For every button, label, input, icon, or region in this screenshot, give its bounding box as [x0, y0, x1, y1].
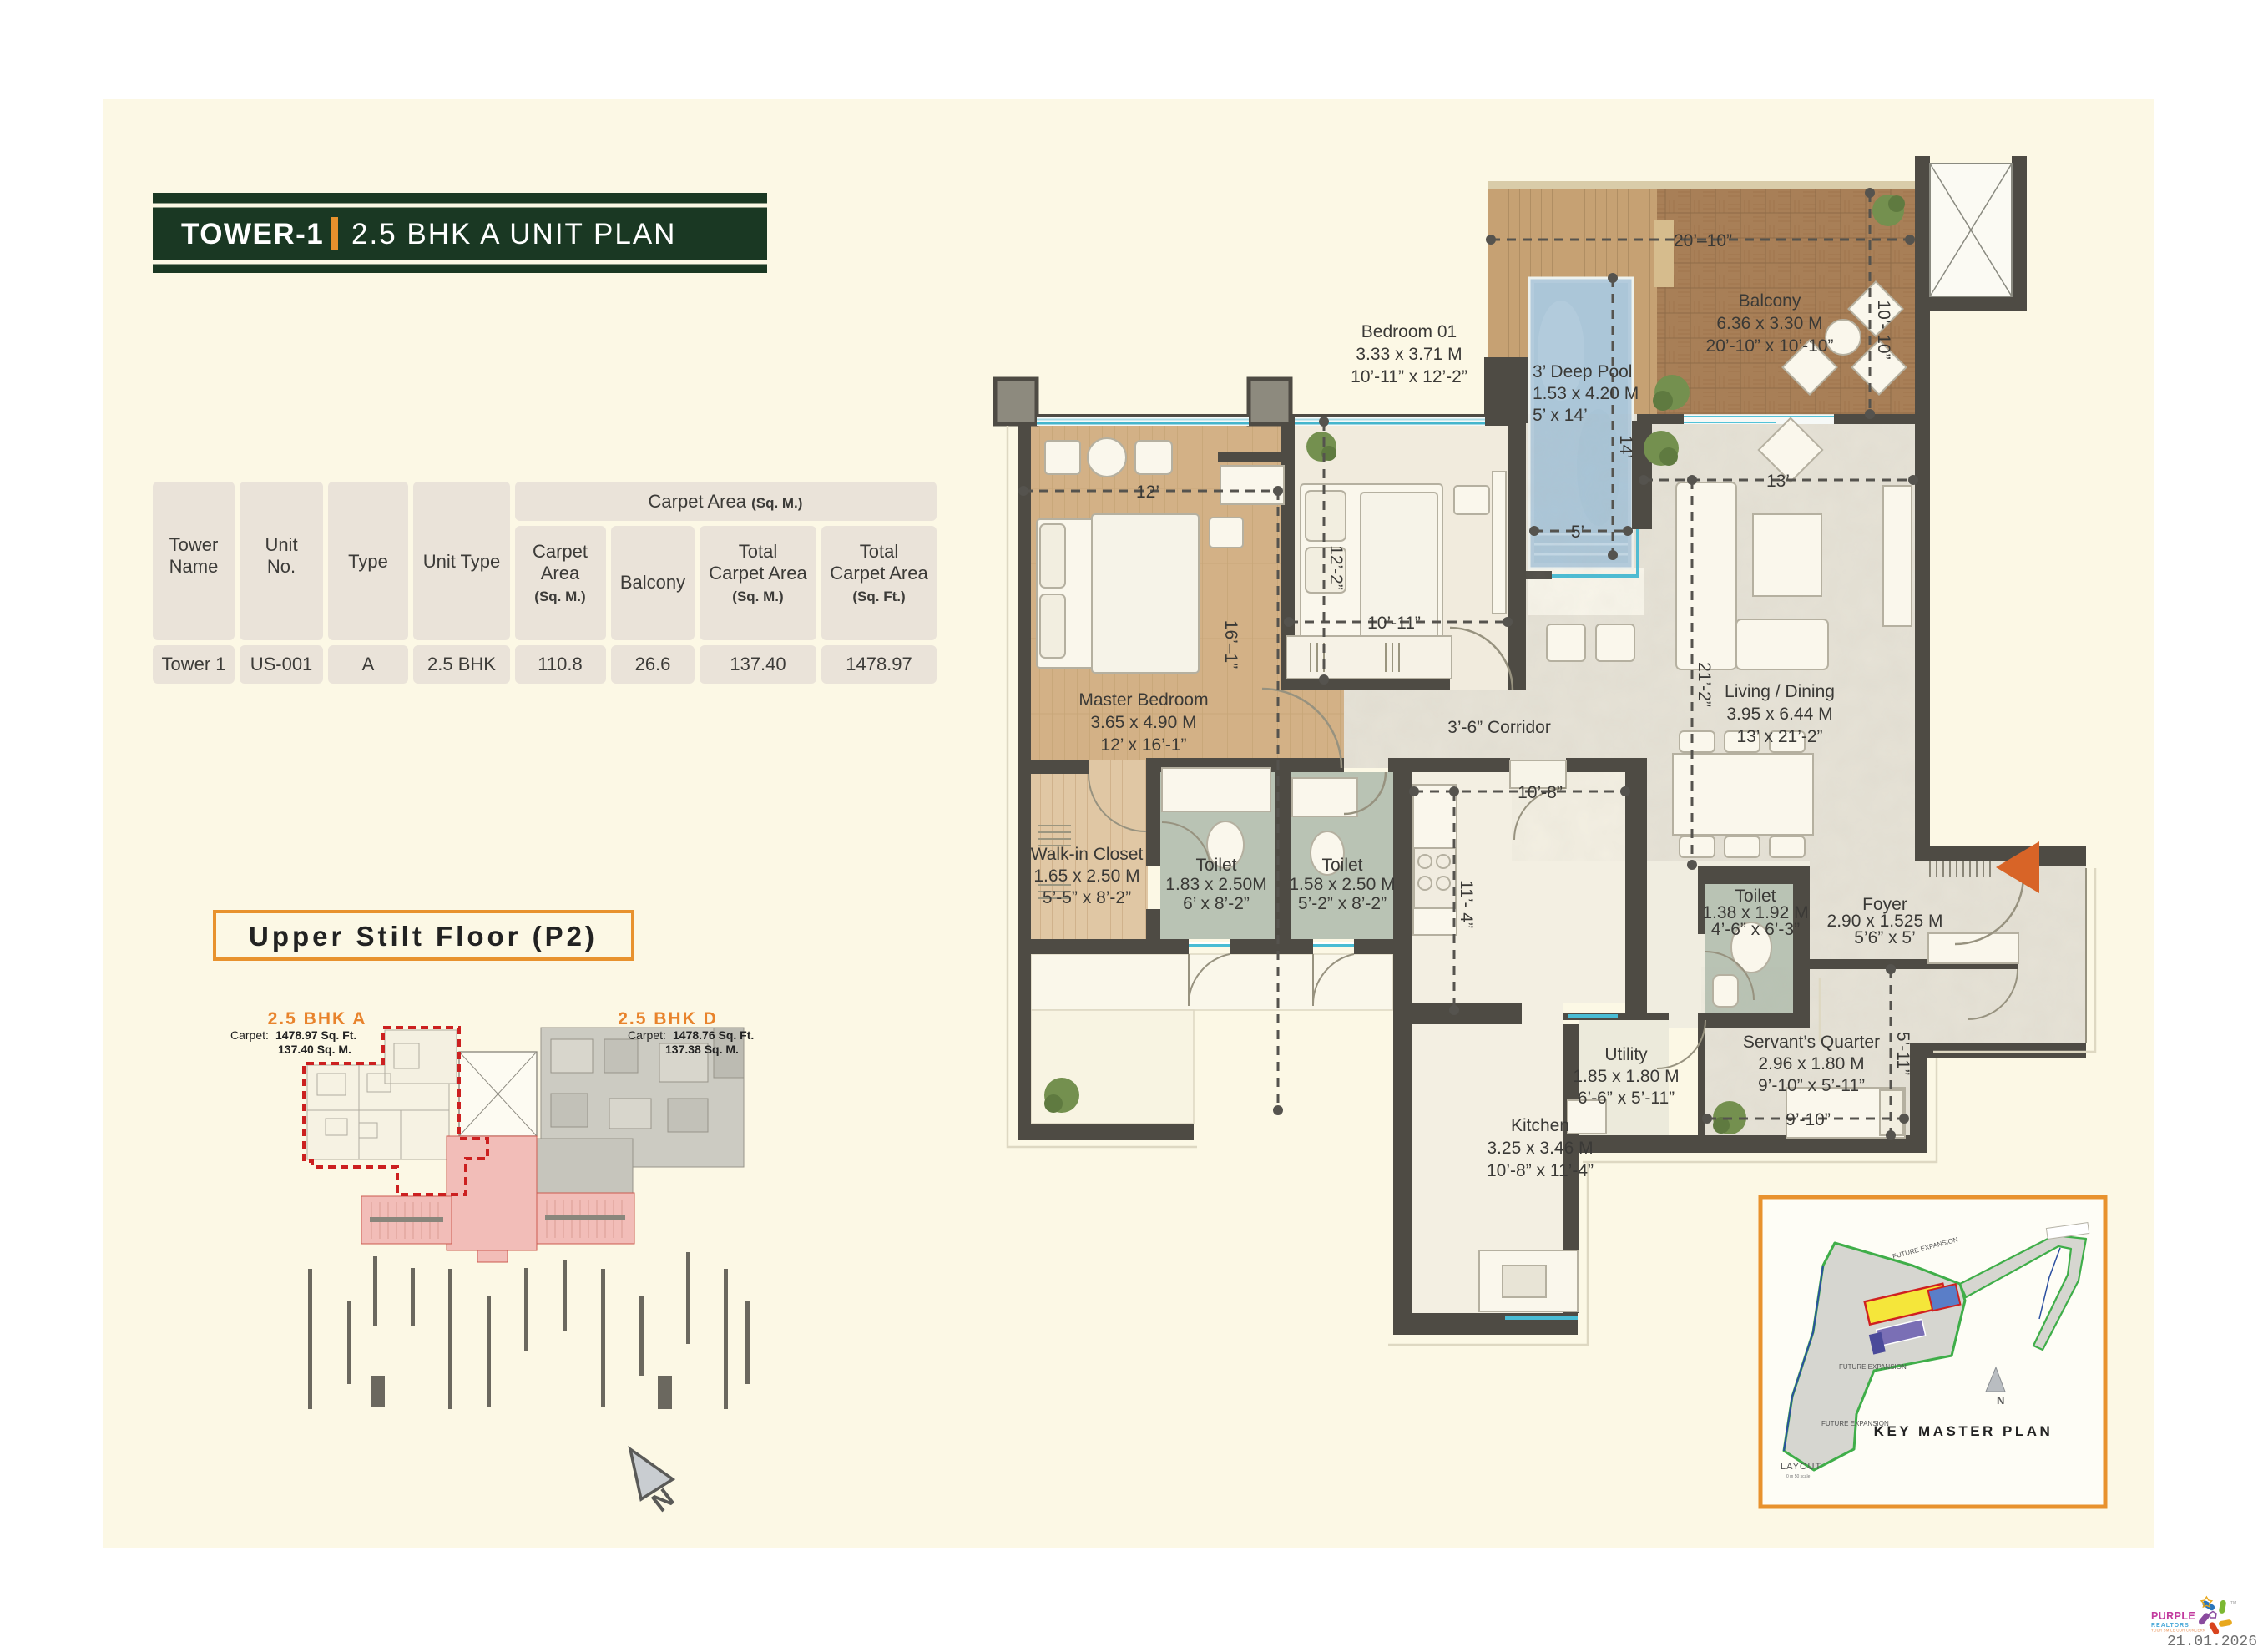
- svg-text:10’-11”: 10’-11”: [1367, 614, 1421, 633]
- svg-text:5’6” x 5’: 5’6” x 5’: [1854, 928, 1916, 947]
- svg-text:Total: Total: [860, 541, 898, 562]
- svg-text:4’-6” x 6’-3”: 4’-6” x 6’-3”: [1711, 920, 1800, 939]
- svg-text:20’–10”: 20’–10”: [1674, 231, 1732, 250]
- svg-text:LAYOUT: LAYOUT: [1781, 1462, 1821, 1472]
- svg-text:0 m 50 scale: 0 m 50 scale: [1786, 1474, 1811, 1479]
- svg-text:3.65 x 4.90 M: 3.65 x 4.90 M: [1090, 713, 1196, 732]
- svg-text:Walk-in Closet: Walk-in Closet: [1031, 845, 1144, 864]
- svg-text:Unit Type: Unit Type: [423, 551, 501, 572]
- svg-text:5’ x 14’: 5’ x 14’: [1533, 406, 1588, 425]
- svg-text:2.96 x 1.80 M: 2.96 x 1.80 M: [1758, 1054, 1864, 1074]
- svg-text:3.33 x 3.71 M: 3.33 x 3.71 M: [1356, 345, 1462, 364]
- svg-text:A: A: [362, 654, 375, 674]
- svg-text:Carpet:: Carpet:: [230, 1028, 269, 1042]
- svg-text:Unit: Unit: [265, 534, 297, 555]
- svg-text:5’: 5’: [1571, 523, 1584, 542]
- svg-text:9’-10”: 9’-10”: [1786, 1110, 1831, 1129]
- svg-text:Master Bedroom: Master Bedroom: [1078, 690, 1208, 710]
- svg-text:Total: Total: [739, 541, 777, 562]
- svg-text:Area: Area: [541, 563, 580, 584]
- svg-text:US-001: US-001: [250, 654, 313, 674]
- svg-text:2.5 BHK A UNIT PLAN: 2.5 BHK A UNIT PLAN: [351, 218, 676, 250]
- svg-text:YOUR SMILE OUR CONCERN: YOUR SMILE OUR CONCERN: [2151, 1629, 2205, 1633]
- svg-text:6’ x 8’-2”: 6’ x 8’-2”: [1183, 894, 1250, 913]
- svg-text:Name: Name: [169, 556, 219, 577]
- svg-text:14’: 14’: [1616, 435, 1635, 458]
- svg-text:Carpet: Carpet: [533, 541, 588, 562]
- svg-text:13’ x 21’-2”: 13’ x 21’-2”: [1736, 727, 1822, 746]
- svg-text:1.85 x 1.80 M: 1.85 x 1.80 M: [1573, 1067, 1679, 1086]
- svg-text:6.36 x 3.30 M: 6.36 x 3.30 M: [1716, 314, 1822, 333]
- svg-text:137.40: 137.40: [730, 654, 786, 674]
- svg-text:N: N: [1997, 1394, 2004, 1407]
- svg-text:12’ x 16’-1”: 12’ x 16’-1”: [1100, 735, 1186, 755]
- svg-text:Toilet: Toilet: [1321, 856, 1362, 875]
- svg-text:110.8: 110.8: [538, 654, 582, 674]
- svg-text:Tower: Tower: [169, 534, 219, 555]
- svg-text:10’-8” x 11’-4”: 10’-8” x 11’-4”: [1487, 1161, 1594, 1180]
- svg-text:Living / Dining: Living / Dining: [1725, 682, 1835, 701]
- svg-text:26.6: 26.6: [635, 654, 671, 674]
- svg-text:10’- 10”: 10’- 10”: [1874, 300, 1893, 359]
- svg-text:Tower 1: Tower 1: [161, 654, 225, 674]
- svg-text:1478.97 Sq. Ft.: 1478.97 Sq. Ft.: [275, 1028, 356, 1042]
- svg-text:Balcony: Balcony: [1739, 291, 1801, 311]
- svg-text:11’- 4”: 11’- 4”: [1457, 880, 1476, 928]
- svg-text:137.40 Sq. M.: 137.40 Sq. M.: [278, 1043, 351, 1056]
- svg-text:9’-10” x 5’-11”: 9’-10” x 5’-11”: [1758, 1076, 1865, 1095]
- svg-text:137.38 Sq. M.: 137.38 Sq. M.: [665, 1043, 739, 1056]
- svg-text:Carpet:: Carpet:: [628, 1028, 666, 1042]
- svg-text:12’-2”: 12’-2”: [1326, 545, 1346, 590]
- svg-text:(Sq. M.): (Sq. M.): [732, 589, 783, 604]
- svg-text:10’-8”: 10’-8”: [1518, 783, 1563, 802]
- svg-text:(Sq. Ft.): (Sq. Ft.): [852, 589, 905, 604]
- svg-text:1.83 x 2.50M: 1.83 x 2.50M: [1165, 875, 1266, 894]
- svg-text:Kitchen: Kitchen: [1511, 1116, 1569, 1135]
- svg-text:Utility: Utility: [1604, 1045, 1648, 1064]
- svg-text:1.58 x 2.50 M: 1.58 x 2.50 M: [1289, 875, 1395, 894]
- svg-text:Servant’s Quarter: Servant’s Quarter: [1743, 1033, 1880, 1052]
- svg-text:5’-11”: 5’-11”: [1893, 1032, 1912, 1075]
- svg-text:Bedroom 01: Bedroom 01: [1361, 322, 1457, 341]
- svg-text:2.5 BHK: 2.5 BHK: [427, 654, 496, 674]
- svg-text:TOWER-1: TOWER-1: [181, 218, 324, 250]
- svg-text:Balcony: Balcony: [620, 572, 685, 593]
- svg-text:No.: No.: [267, 556, 296, 577]
- svg-text:2.5 BHK A: 2.5 BHK A: [268, 1009, 367, 1028]
- svg-text:16’–1”: 16’–1”: [1221, 620, 1240, 669]
- svg-text:PURPLE: PURPLE: [2151, 1610, 2195, 1622]
- svg-text:KEY MASTER PLAN: KEY MASTER PLAN: [1874, 1423, 2053, 1439]
- svg-text:3.95 x 6.44 M: 3.95 x 6.44 M: [1726, 705, 1832, 724]
- svg-text:TM: TM: [2230, 1601, 2236, 1606]
- svg-text:20’-10” x 10’-10”: 20’-10” x 10’-10”: [1706, 336, 1834, 356]
- svg-text:Toilet: Toilet: [1195, 856, 1236, 875]
- svg-text:21.01.2026: 21.01.2026: [2167, 1634, 2257, 1650]
- svg-text:12’: 12’: [1136, 482, 1159, 502]
- svg-text:Type: Type: [348, 551, 388, 572]
- svg-text:Carpet Area: Carpet Area: [709, 563, 807, 584]
- svg-text:3’-6” Corridor: 3’-6” Corridor: [1447, 718, 1551, 737]
- svg-text:3.25 x 3.46 M: 3.25 x 3.46 M: [1487, 1139, 1593, 1158]
- svg-text:1.65 x 2.50 M: 1.65 x 2.50 M: [1033, 866, 1139, 886]
- svg-text:10’-11” x 12’-2”: 10’-11” x 12’-2”: [1351, 367, 1467, 386]
- svg-text:5’-2” x 8’-2”: 5’-2” x 8’-2”: [1298, 894, 1387, 913]
- svg-text:Upper Stilt Floor (P2): Upper Stilt Floor (P2): [249, 921, 598, 952]
- svg-text:FUTURE EXPANSION: FUTURE EXPANSION: [1839, 1363, 1907, 1371]
- svg-text:1478.97: 1478.97: [846, 654, 912, 674]
- svg-text:21’-2”: 21’-2”: [1695, 662, 1714, 707]
- svg-text:Carpet Area: Carpet Area: [830, 563, 928, 584]
- svg-text:1478.76 Sq. Ft.: 1478.76 Sq. Ft.: [673, 1028, 754, 1042]
- svg-text:3’ Deep Pool: 3’ Deep Pool: [1533, 362, 1632, 381]
- svg-text:13’: 13’: [1766, 472, 1790, 491]
- svg-text:5’-5” x 8’-2”: 5’-5” x 8’-2”: [1043, 888, 1131, 907]
- svg-text:1.53 x 4.20 M: 1.53 x 4.20 M: [1533, 384, 1639, 403]
- svg-text:(Sq. M.): (Sq. M.): [534, 589, 585, 604]
- svg-text:2.5 BHK D: 2.5 BHK D: [618, 1009, 718, 1028]
- svg-text:6’-6” x 5’-11”: 6’-6” x 5’-11”: [1578, 1089, 1675, 1108]
